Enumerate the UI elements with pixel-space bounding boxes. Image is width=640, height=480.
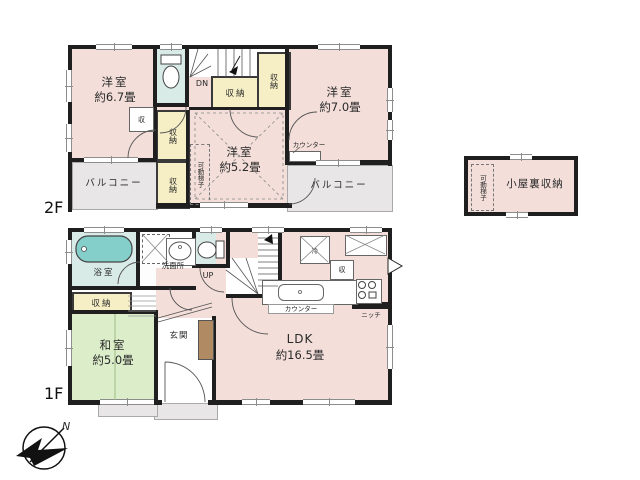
window: [387, 120, 393, 140]
pantry-space: [345, 235, 387, 256]
wall: [226, 232, 230, 268]
washitsu-label: 和室 約5.0畳: [74, 338, 152, 368]
room-size: 約6.7畳: [94, 90, 135, 105]
closet-label: 収納: [168, 128, 179, 144]
bedroom-7-0-label: 洋室 約7.0畳: [300, 85, 380, 115]
shoe-cabinet: [198, 320, 214, 360]
window: [160, 44, 182, 50]
window: [303, 399, 355, 405]
balcony-left-label: バルコニー: [76, 178, 152, 190]
stairs-up-label: UP: [198, 271, 218, 281]
bathroom: [72, 232, 136, 290]
window: [252, 227, 284, 233]
closet-label: 収納: [91, 297, 112, 309]
stove: [356, 279, 382, 304]
wall: [136, 232, 140, 290]
window: [200, 202, 248, 208]
stairs-1f-winder: [226, 258, 258, 296]
closet-small-label: 収: [339, 265, 346, 275]
closet-small-2f: 収: [129, 107, 154, 132]
room-size: 約7.0畳: [319, 100, 360, 115]
window: [510, 154, 532, 160]
window: [96, 44, 132, 50]
entrance-porch: [154, 403, 218, 420]
compass-north-label: N: [62, 420, 70, 434]
deck-step: [98, 403, 158, 417]
attic-label: 小屋裏収納: [494, 178, 576, 192]
wall: [185, 49, 189, 107]
window: [350, 227, 382, 233]
niche-label: ニッチ: [352, 311, 390, 319]
compass-bird: [16, 438, 68, 466]
window: [506, 212, 528, 218]
window: [84, 227, 124, 233]
window: [100, 399, 154, 405]
wall: [136, 286, 196, 290]
wall: [208, 400, 392, 405]
floor-2f-label: 2F: [44, 198, 63, 219]
window: [387, 88, 393, 112]
closet-2f-left-lower: 収納: [156, 161, 190, 209]
wall: [189, 107, 289, 110]
bath-label: 浴室: [82, 268, 126, 279]
washroom-label: 洗面所: [152, 261, 194, 271]
counter-1f-label: カウンター: [268, 304, 334, 314]
compass-needle: [30, 428, 64, 462]
wall: [68, 310, 158, 314]
wall: [68, 286, 136, 290]
ldk-label: LDK 約16.5畳: [255, 332, 345, 363]
window: [242, 399, 270, 405]
balcony-right-label: バルコニー: [292, 180, 386, 192]
room-name: 洋室: [102, 75, 129, 90]
stairs-down-label: DN: [192, 79, 212, 89]
kitchen-sink: [278, 284, 324, 301]
wall: [192, 264, 230, 268]
compass-rose: [16, 427, 68, 469]
window-balcony-door: [84, 157, 138, 163]
bedroom-5-2-label: 洋室 約5.2畳: [200, 145, 280, 175]
closet-2f-left-upper: 収納: [156, 110, 190, 161]
refrigerator-space: 冷: [300, 236, 330, 264]
floor-plan-canvas: 2F 収納 収納 収納 収納 収 可動梯子 洋室 約6.7畳 洋室 約7.0畳: [0, 0, 640, 480]
window: [66, 70, 72, 102]
window-balcony-door: [316, 160, 360, 166]
toilet-2f: [156, 49, 186, 105]
window: [66, 240, 72, 264]
room-name: 和室: [100, 338, 127, 353]
room-name: 洋室: [327, 85, 354, 100]
wall: [153, 103, 189, 107]
room-size: 約5.2畳: [219, 160, 260, 175]
closet-2f-center: 収納: [211, 76, 261, 109]
genkan-label: 玄関: [160, 331, 198, 342]
room-name: LDK: [287, 332, 314, 348]
counter-2f-label: カウンター: [288, 141, 330, 149]
wall: [186, 110, 189, 207]
bedroom-6-7-label: 洋室 約6.7畳: [80, 75, 150, 105]
floor-1f-label: 1F: [44, 384, 63, 405]
window: [387, 325, 393, 369]
movable-ladder-attic: 可動梯子: [471, 164, 494, 211]
closet-small-1f: 収: [330, 260, 354, 280]
closet-small-label: 収: [138, 115, 145, 125]
window: [318, 44, 360, 50]
closet-label: 収納: [269, 73, 280, 89]
wall: [154, 310, 158, 402]
room-name: 洋室: [227, 145, 254, 160]
room-size: 約5.0畳: [92, 353, 133, 368]
stairs-2f: [189, 49, 258, 77]
closet-label: 収納: [168, 177, 179, 193]
ladder-label: 可動梯子: [478, 175, 488, 201]
fridge-label: 冷: [312, 245, 319, 255]
window: [66, 330, 72, 366]
room-size: 約16.5畳: [276, 348, 325, 363]
closet-label: 収納: [225, 87, 246, 99]
window: [200, 227, 222, 233]
window: [66, 124, 72, 152]
